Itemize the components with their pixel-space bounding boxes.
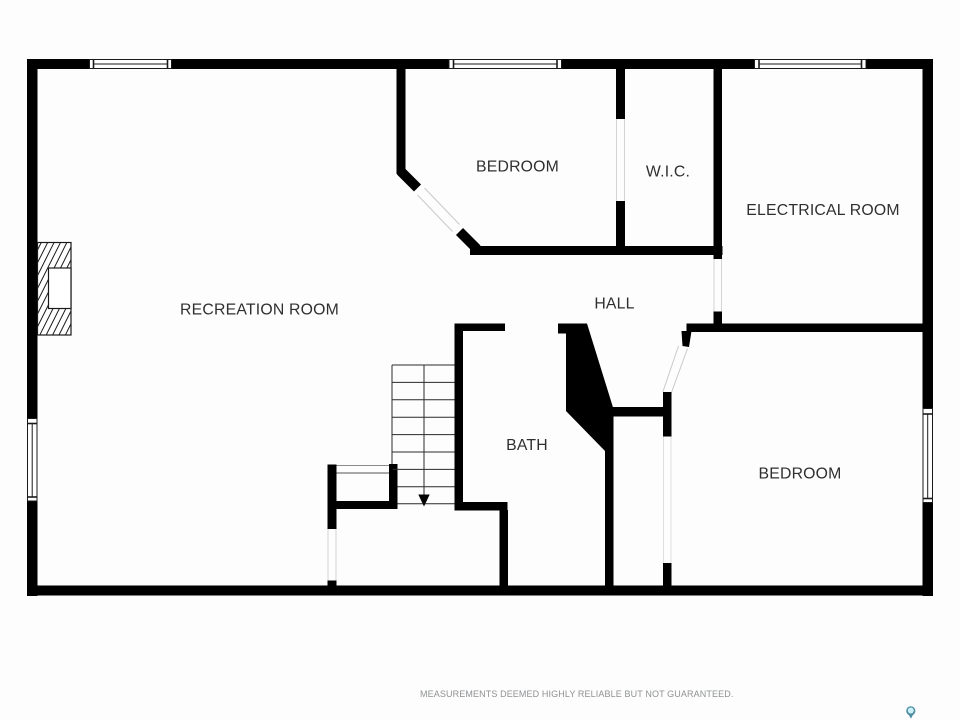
svg-text:BEDROOM: BEDROOM — [758, 466, 841, 483]
svg-text:ELECTRICAL ROOM: ELECTRICAL ROOM — [746, 202, 899, 219]
svg-text:BATH: BATH — [506, 437, 548, 454]
svg-text:HALL: HALL — [594, 296, 634, 313]
svg-text:BEDROOM: BEDROOM — [476, 159, 559, 176]
svg-text:MEASUREMENTS DEEMED HIGHLY REL: MEASUREMENTS DEEMED HIGHLY RELIABLE BUT … — [420, 689, 734, 699]
svg-text:RECREATION ROOM: RECREATION ROOM — [180, 302, 339, 319]
svg-text:W.I.C.: W.I.C. — [646, 164, 690, 181]
